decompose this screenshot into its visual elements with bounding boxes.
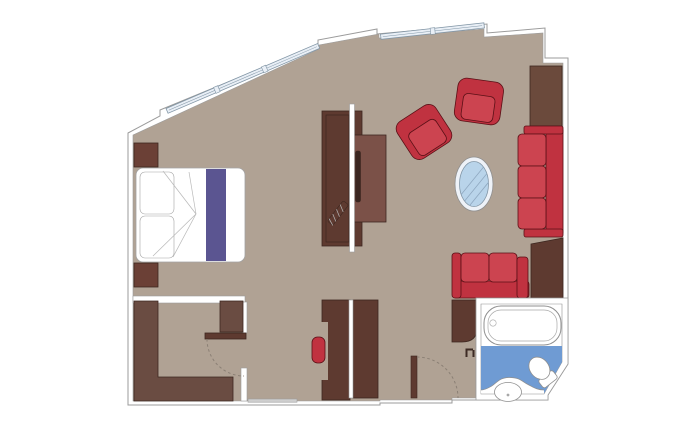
loveseat-cushion bbox=[489, 253, 517, 282]
oval-glass-table bbox=[455, 157, 493, 211]
bathtub bbox=[484, 306, 561, 345]
loveseat bbox=[452, 253, 529, 298]
armchair-right bbox=[453, 77, 505, 126]
threshold-strip bbox=[248, 399, 297, 402]
wardrobe-block bbox=[220, 301, 243, 332]
loveseat-armrest-left bbox=[452, 253, 461, 298]
sofa-cushion bbox=[518, 134, 546, 166]
sofa-backrest bbox=[546, 130, 563, 233]
closet-jamb-lower bbox=[241, 368, 247, 401]
loveseat-cushion bbox=[461, 253, 489, 282]
floor-plan-canvas bbox=[0, 0, 700, 433]
nightstand-bottom bbox=[134, 263, 158, 287]
minibar-unit bbox=[452, 300, 477, 342]
nightstand-top bbox=[134, 143, 158, 167]
glass-partition bbox=[350, 104, 355, 252]
desk-unit-right bbox=[353, 300, 378, 398]
sofa-cushion bbox=[518, 166, 546, 198]
washbasin bbox=[495, 383, 522, 402]
desk-chair bbox=[312, 337, 325, 363]
sofa-armrest-top bbox=[524, 126, 563, 134]
tv-console-back bbox=[322, 111, 353, 246]
floor-plan bbox=[0, 0, 700, 433]
side-cabinet-angled bbox=[531, 238, 563, 298]
entrance-door-leaf bbox=[411, 356, 417, 398]
sofa-cushion bbox=[518, 198, 546, 229]
desk-divider-overlay bbox=[349, 300, 353, 398]
bathtub-drain bbox=[490, 320, 496, 326]
closet-door-leaf bbox=[205, 333, 246, 339]
sofa-three-seat bbox=[518, 126, 563, 237]
loveseat-armrest-right bbox=[517, 257, 528, 298]
tv-screen bbox=[356, 151, 361, 202]
window-joint bbox=[430, 28, 435, 35]
sofa-armrest-bottom bbox=[524, 229, 563, 237]
side-cabinet-top-right bbox=[530, 66, 562, 126]
bed-runner bbox=[206, 169, 226, 261]
